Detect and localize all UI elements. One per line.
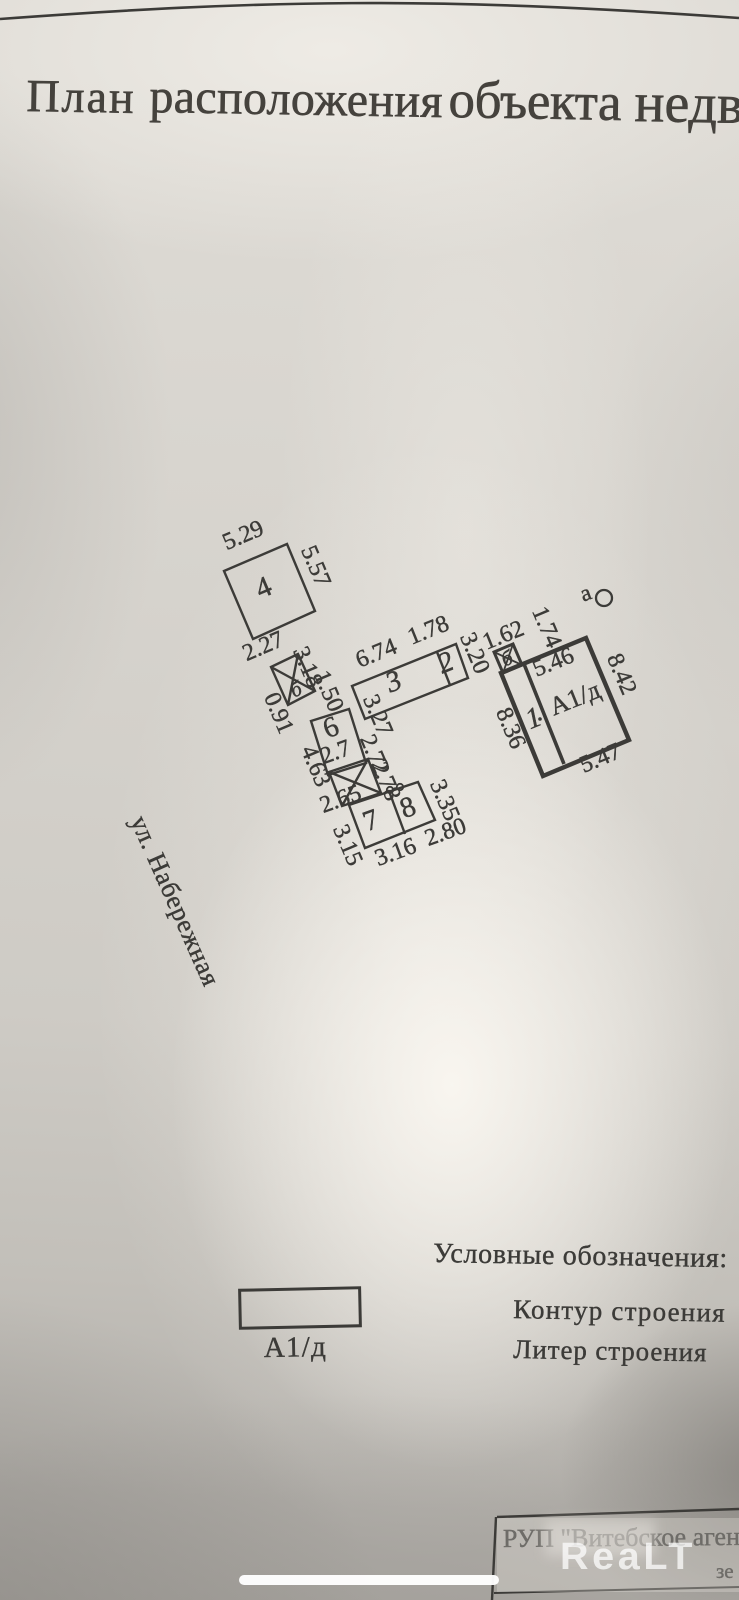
svg-text:Литер строения: Литер строения (513, 1334, 708, 1367)
svg-text:2: 2 (433, 645, 458, 680)
svg-text:А1/д: А1/д (545, 675, 604, 721)
svg-text:5.57: 5.57 (295, 542, 335, 591)
svg-text:5.29: 5.29 (219, 515, 268, 555)
svg-text:3.16: 3.16 (371, 833, 419, 872)
svg-text:ул. Набережная: ул. Набережная (125, 811, 226, 991)
svg-text:7: 7 (359, 803, 384, 838)
svg-text:2.80: 2.80 (421, 813, 469, 852)
svg-text:1.74: 1.74 (526, 603, 566, 652)
svg-text:2.65: 2.65 (316, 780, 364, 819)
svg-text:а: а (576, 579, 594, 606)
svg-text:Контур строения: Контур строения (513, 1294, 726, 1328)
svg-text:5.46: 5.46 (529, 643, 578, 683)
svg-text:Условные обозначения:: Условные обозначения: (433, 1238, 728, 1274)
svg-text:1.50: 1.50 (308, 667, 348, 716)
svg-text:А1/д: А1/д (264, 1331, 328, 1364)
svg-text:4: 4 (251, 570, 277, 605)
svg-text:3: 3 (380, 664, 406, 699)
svg-text:3.15: 3.15 (327, 821, 367, 870)
svg-text:2.27: 2.27 (239, 626, 288, 666)
